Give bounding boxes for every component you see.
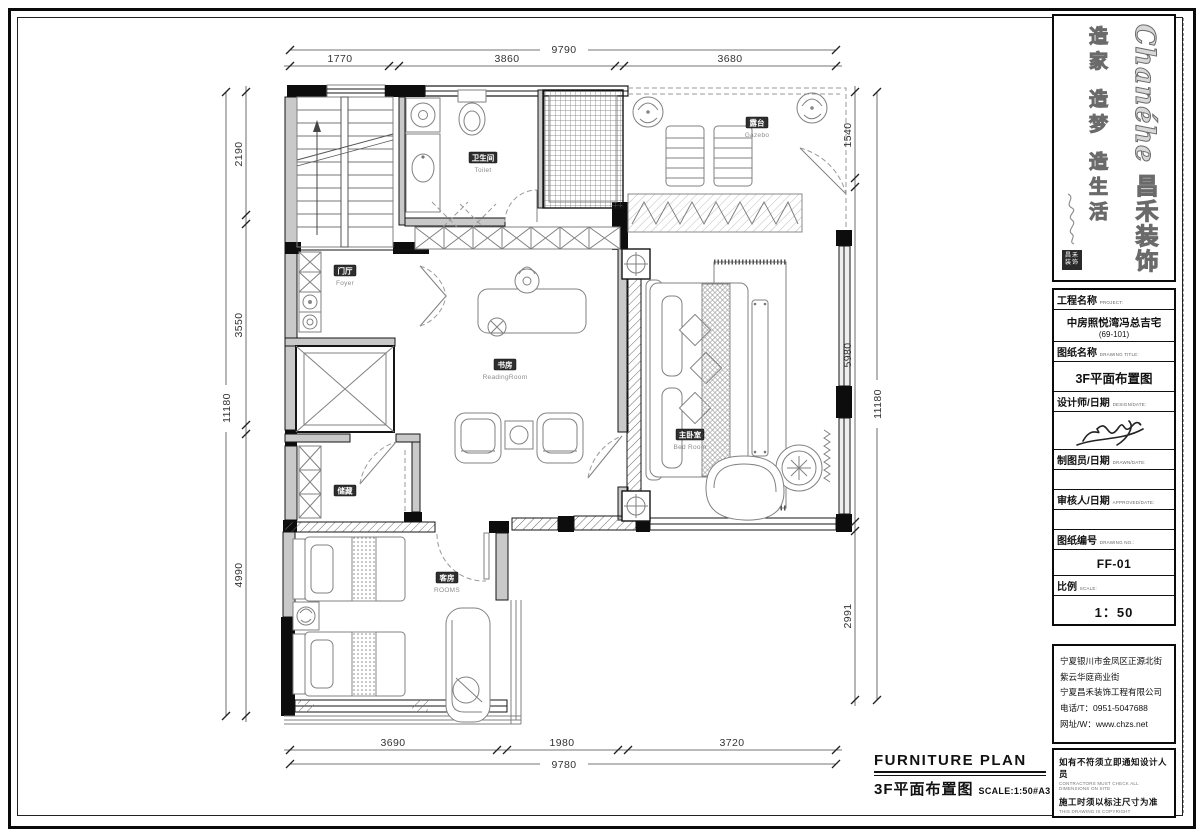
sheet-border-inner	[17, 17, 1183, 816]
company-block: 宁夏银川市金凤区正源北街 紫云华庭商业街 宁夏昌禾装饰工程有限公司 电话/T：0…	[1052, 644, 1176, 744]
caption-scale: SCALE:1:50#A3	[979, 786, 1051, 796]
field-approver-label: 审核人/日期 APPROVED/DATE:	[1054, 490, 1174, 510]
field-designer-label: 设计师/日期 DESIGN/DATE:	[1054, 392, 1174, 412]
brand-seal: 昌禾装饰	[1062, 250, 1082, 270]
field-project-label: 工程名称 PROJECT:	[1054, 290, 1174, 310]
title-block-fields: 工程名称 PROJECT: 中房照悦湾冯总吉宅 (69-101) 图纸名称 DR…	[1052, 288, 1176, 626]
field-number-value: FF-01	[1054, 550, 1174, 576]
sheet-caption: FURNITURE PLAN 3F平面布置图 SCALE:1:50#A3	[874, 752, 1046, 799]
field-drafter-value	[1054, 470, 1174, 490]
company-line: 网址/W：www.chzs.net	[1060, 717, 1168, 733]
drawing-sheet: 9790 1770 3860 3680 3690 1980 3720 9780	[0, 0, 1200, 833]
field-number-label: 图纸编号 DRAWING NO.:	[1054, 530, 1174, 550]
field-scale-value: 1：50	[1054, 596, 1174, 624]
designer-signature	[1054, 412, 1174, 450]
note-en: THIS DRAWING IS COPYRIGHT	[1059, 809, 1169, 814]
brand-slogan: 造家 造梦 造生活	[1084, 26, 1111, 226]
company-line: 电话/T：0951-5047688	[1060, 701, 1168, 717]
brand-name-cn: 昌禾装饰	[1128, 174, 1162, 274]
logo-block: Chanéhe 昌禾装饰 造家 造梦 造生活 昌禾装饰	[1052, 14, 1176, 282]
field-scale-label: 比例 SCALE:	[1054, 576, 1174, 596]
field-title-value: 3F平面布置图	[1054, 362, 1174, 392]
note-cn: 如有不符须立即通知设计人员	[1059, 756, 1169, 780]
brand-name: Chanéhe	[1129, 24, 1160, 163]
field-title-label: 图纸名称 DRAWING TITLE:	[1054, 342, 1174, 362]
caption-en: FURNITURE PLAN	[874, 752, 1046, 773]
company-line: 紫云华庭商业街	[1060, 670, 1168, 686]
field-approver-value	[1054, 510, 1174, 530]
caption-cn: 3F平面布置图	[874, 778, 974, 799]
note-cn: 施工时须以标注尺寸为准	[1059, 796, 1169, 808]
calligraphy-mark	[1060, 190, 1082, 246]
fold-line	[1183, 18, 1184, 813]
company-line: 宁夏昌禾装饰工程有限公司	[1060, 685, 1168, 701]
notes-block: 如有不符须立即通知设计人员 CONTRACTORS MUST CHECK ALL…	[1052, 748, 1176, 818]
note-en: CONTRACTORS MUST CHECK ALL DIMENSIONS ON…	[1059, 781, 1169, 791]
company-line: 宁夏银川市金凤区正源北街	[1060, 654, 1168, 670]
field-project-value: 中房照悦湾冯总吉宅 (69-101)	[1054, 310, 1174, 342]
field-drafter-label: 制图员/日期 DRAWN/DATE:	[1054, 450, 1174, 470]
